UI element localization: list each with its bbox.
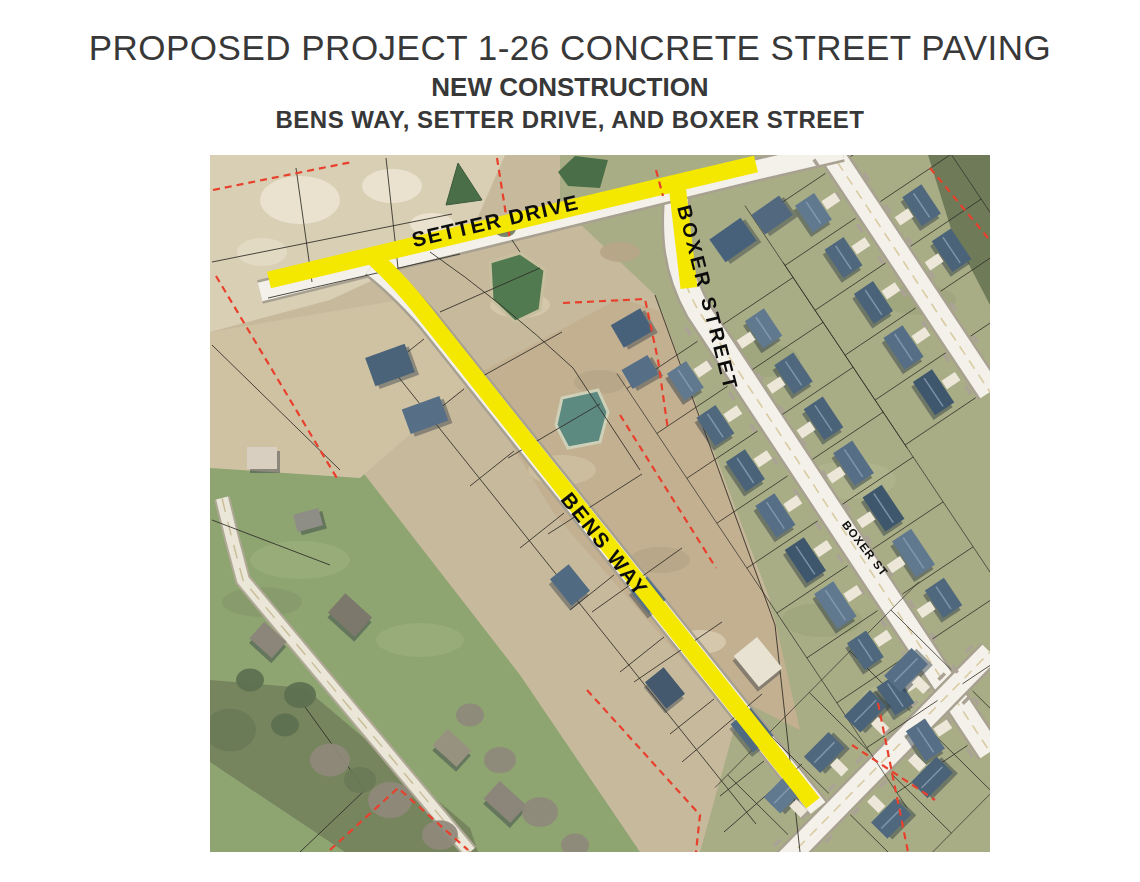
page-street-list: BENS WAY, SETTER DRIVE, AND BOXER STREET [0,106,1140,134]
aerial-photo: SETTER DRIVE BOXER STREET BENS WAY BOXER… [210,155,990,852]
aerial-map: SETTER DRIVE BOXER STREET BENS WAY BOXER… [210,155,990,852]
page-subtitle: NEW CONSTRUCTION [0,72,1140,103]
page: PROPOSED PROJECT 1-26 CONCRETE STREET PA… [0,0,1140,882]
page-title: PROPOSED PROJECT 1-26 CONCRETE STREET PA… [0,28,1140,68]
